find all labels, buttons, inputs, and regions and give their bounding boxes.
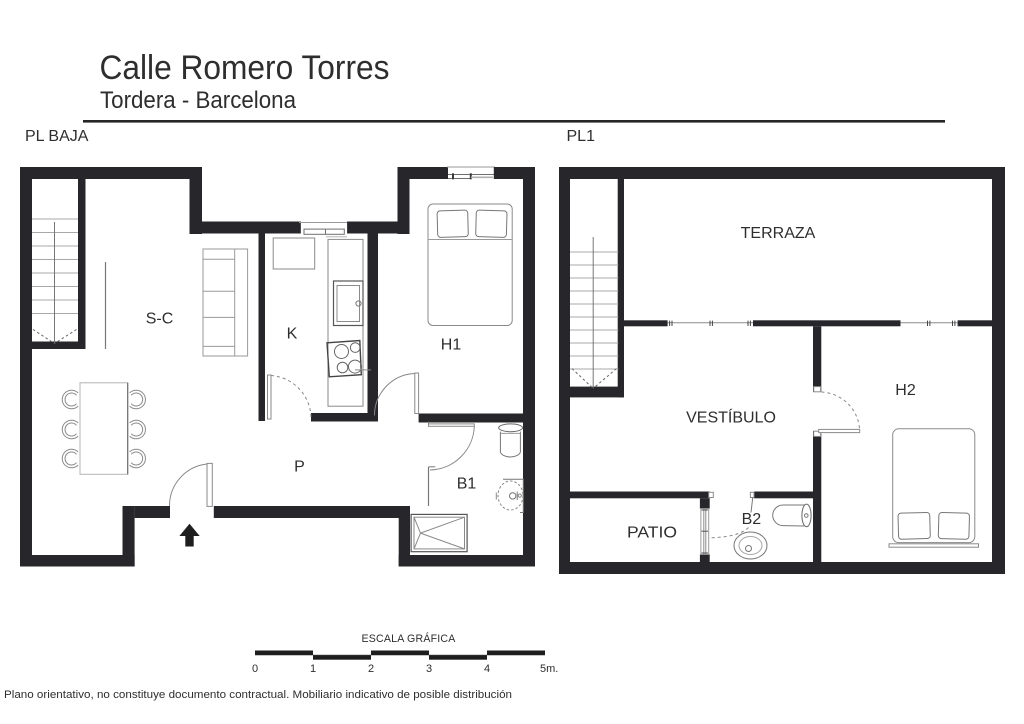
svg-text:1: 1 <box>310 663 316 675</box>
svg-text:H1: H1 <box>441 337 462 354</box>
svg-text:Plano orientativo, no constitu: Plano orientativo, no constituye documen… <box>4 689 512 701</box>
svg-text:0: 0 <box>252 663 258 675</box>
svg-text:VESTÍBULO: VESTÍBULO <box>686 408 776 427</box>
svg-text:TERRAZA: TERRAZA <box>741 225 816 242</box>
svg-text:B1: B1 <box>457 476 477 493</box>
svg-text:P: P <box>294 459 305 476</box>
svg-text:K: K <box>287 326 298 343</box>
svg-text:Calle Romero Torres: Calle Romero Torres <box>100 49 390 87</box>
svg-text:4: 4 <box>484 663 490 675</box>
svg-text:3: 3 <box>426 663 432 675</box>
svg-text:2: 2 <box>368 663 374 675</box>
svg-text:PL1: PL1 <box>567 128 596 145</box>
svg-text:B2: B2 <box>742 511 762 528</box>
svg-text:PATIO: PATIO <box>627 525 677 542</box>
svg-text:Tordera - Barcelona: Tordera - Barcelona <box>100 87 297 114</box>
svg-text:S-C: S-C <box>146 311 174 328</box>
svg-text:H2: H2 <box>895 382 916 399</box>
svg-text:ESCALA GRÁFICA: ESCALA GRÁFICA <box>361 632 456 645</box>
svg-text:PL BAJA: PL BAJA <box>25 128 89 145</box>
svg-text:5m.: 5m. <box>540 663 558 675</box>
